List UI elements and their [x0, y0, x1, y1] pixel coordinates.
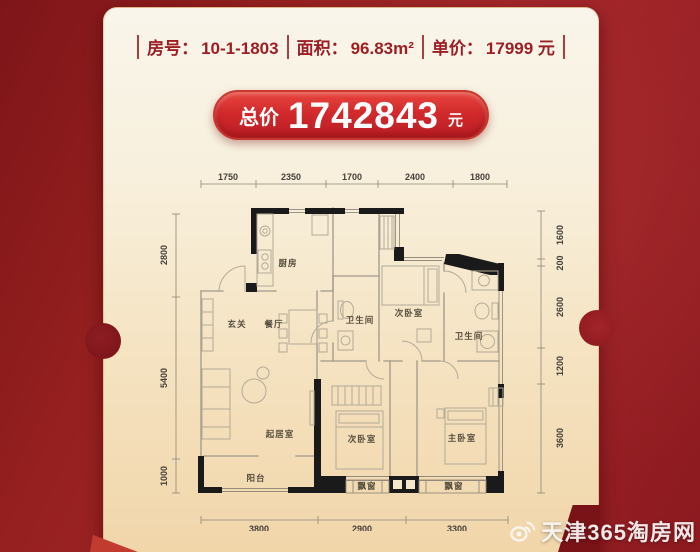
dim-top-2: 1700 [342, 172, 362, 182]
promo-poster: 房号： 10-1-1803 面积： 96.83m² 单价： 17999 元 总价… [0, 0, 700, 552]
dim-top-4: 1800 [470, 172, 490, 182]
total-price-unit: 元 [448, 109, 463, 130]
header-divider [287, 35, 289, 59]
room-label-bath1: 卫生间 [346, 315, 375, 325]
dim-right-1: 200 [555, 255, 565, 270]
area-field: 面积： 96.83m² [297, 34, 414, 59]
room-label-kitchen: 厨房 [278, 258, 297, 268]
dim-bottom-1: 2900 [352, 524, 372, 531]
listing-card: 房号： 10-1-1803 面积： 96.83m² 单价： 17999 元 总价… [103, 7, 599, 552]
total-price-value: 1742843 [288, 97, 439, 134]
dim-right-4: 3600 [555, 428, 565, 448]
dim-top-3: 2400 [405, 172, 425, 182]
dim-right-3: 1200 [555, 356, 565, 376]
room-number-value: 10-1-1803 [201, 39, 279, 59]
unit-price-label: 单价： [432, 34, 483, 59]
total-price-badge: 总价 1742843 元 [213, 90, 489, 140]
room-label-balcony: 阳台 [246, 473, 265, 483]
room-label-bed2-top: 次卧室 [395, 308, 424, 318]
room-label-bath2: 卫生间 [455, 331, 484, 341]
dim-top-1: 2350 [281, 172, 301, 182]
room-label-dining: 餐厅 [263, 319, 283, 329]
dim-left-0: 2800 [159, 245, 169, 265]
room-label-bay1: 飘窗 [357, 481, 376, 491]
room-number-field: 房号： 10-1-1803 [147, 34, 279, 59]
dim-bottom-2: 3300 [447, 524, 467, 531]
furniture [202, 214, 503, 469]
room-label-living: 起居室 [265, 429, 295, 439]
room-number-label: 房号： [147, 34, 198, 59]
total-price-label: 总价 [239, 101, 279, 130]
dim-left-1: 5400 [159, 368, 169, 388]
dim-right-0: 1600 [555, 225, 565, 245]
listing-header: 房号： 10-1-1803 面积： 96.83m² 单价： 17999 元 [104, 34, 598, 59]
dimension-lines: 1750 2350 1700 2400 1800 3800 2900 3300 … [159, 172, 565, 531]
floor-plan: 1750 2350 1700 2400 1800 3800 2900 3300 … [126, 171, 581, 531]
watermark: 天津365淘房网 [509, 515, 696, 547]
unit-price-value: 17999 元 [486, 34, 555, 59]
dim-bottom-0: 3800 [249, 524, 269, 531]
room-label-bed2-bottom: 次卧室 [348, 434, 377, 444]
room-label-entry: 玄关 [227, 319, 246, 329]
header-divider [137, 35, 139, 59]
weibo-icon [509, 519, 536, 543]
unit-price-field: 单价： 17999 元 [432, 34, 555, 59]
ticket-notch-left [85, 323, 121, 359]
area-label: 面积： [297, 34, 348, 59]
dim-left-2: 1000 [159, 466, 169, 486]
header-divider [563, 35, 565, 59]
door-arcs [219, 266, 466, 379]
area-value: 96.83m² [351, 39, 414, 59]
windows [222, 210, 503, 494]
room-label-bay2: 飘窗 [444, 481, 463, 491]
dim-top-0: 1750 [218, 172, 238, 182]
watermark-text: 天津365淘房网 [541, 515, 696, 547]
dim-right-2: 2600 [555, 297, 565, 317]
ticket-notch-right [579, 310, 615, 346]
room-label-master: 主卧室 [448, 433, 477, 443]
header-divider [422, 35, 424, 59]
